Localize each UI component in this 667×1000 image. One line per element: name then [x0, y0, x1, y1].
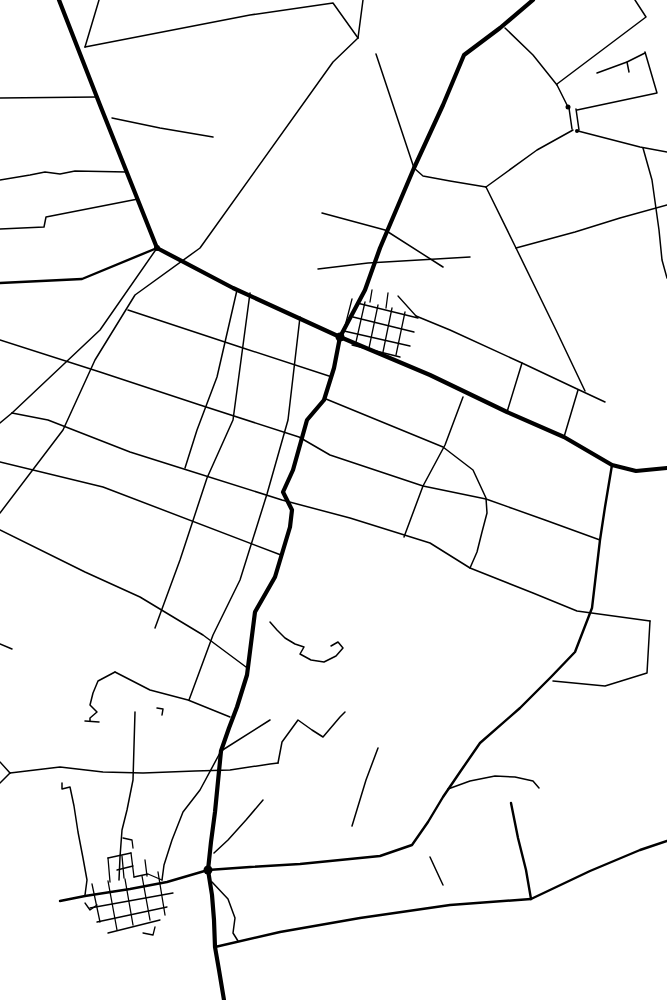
- minor-road-44: [85, 721, 99, 722]
- road-map-frame: [0, 0, 667, 1000]
- road-map-canvas[interactable]: [0, 0, 667, 1000]
- junction-dot-2: [204, 866, 213, 875]
- junction-dot-0: [154, 245, 160, 251]
- junction-dot-4: [575, 129, 579, 133]
- junction-dot-1: [336, 333, 345, 342]
- map-background: [0, 0, 667, 1000]
- junction-dot-3: [566, 105, 571, 110]
- minor-road-4: [0, 97, 97, 98]
